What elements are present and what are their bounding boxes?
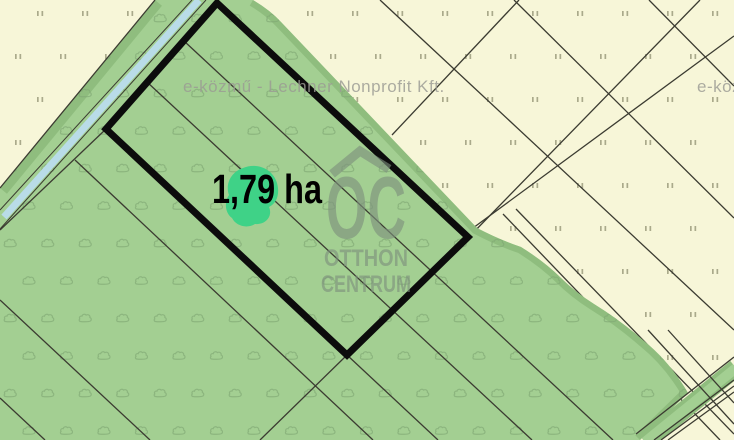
otthon-centrum-watermark: OC OTTHON CENTRUM [321, 151, 411, 298]
provider-watermark-text: e-közmű - Lechner Nonprofit Kft. [183, 77, 445, 96]
cadastral-map-canvas[interactable]: e-közmű - Lechner Nonprofit Kft. e-közmű… [0, 0, 734, 440]
provider-watermark-text-repeat: e-közmű - Lechner Nonprofit Kft. [697, 77, 734, 96]
logo-monogram: OC [326, 158, 406, 257]
logo-line1: OTTHON [324, 245, 408, 272]
cadastral-map-viewport[interactable]: e-közmű - Lechner Nonprofit Kft. e-közmű… [0, 0, 734, 440]
logo-line2: CENTRUM [321, 271, 411, 298]
parcel-area-label: 1,79 ha [212, 166, 323, 212]
